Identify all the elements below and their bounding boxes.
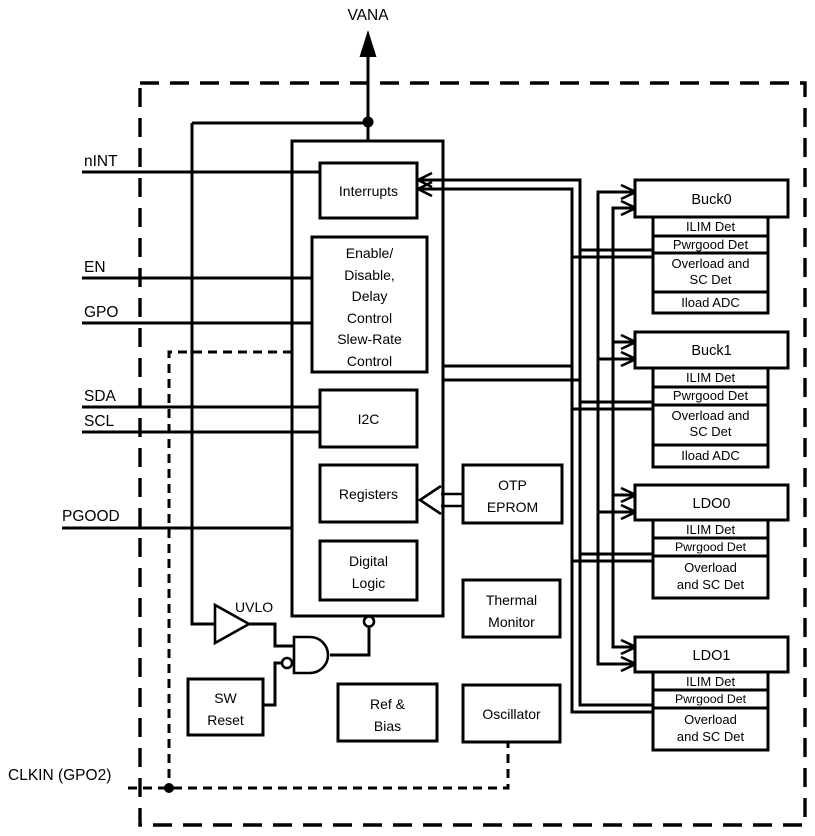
ref-bias-line-2: Bias bbox=[374, 718, 401, 734]
pgood-label: PGOOD bbox=[62, 508, 120, 525]
interrupts-label: Interrupts bbox=[339, 183, 398, 199]
pin-en: EN bbox=[82, 259, 312, 278]
gpo-label: GPO bbox=[84, 304, 118, 321]
pin-gpo: GPO bbox=[82, 304, 312, 323]
buck1-overload-line-2: SC Det bbox=[690, 424, 732, 439]
digital-logic-box bbox=[320, 541, 417, 600]
scl-label: SCL bbox=[84, 413, 115, 430]
vana-arrow-icon bbox=[360, 30, 377, 57]
oscillator-block: Oscillator bbox=[463, 685, 560, 742]
otp-open-arrow-icon bbox=[420, 486, 441, 514]
enable-line-4: Control bbox=[347, 310, 392, 326]
digital-logic-line-2: Logic bbox=[352, 575, 385, 591]
enable-bus-wire-1 bbox=[598, 192, 635, 664]
ldo1-pwrgood-label: Pwrgood Det bbox=[675, 692, 747, 706]
nand-output-wire bbox=[330, 627, 369, 656]
sda-label: SDA bbox=[84, 388, 117, 405]
enable-bus-wire-2 bbox=[613, 208, 635, 647]
buck1-overload-line-1: Overload and bbox=[671, 408, 749, 423]
buck0-overload-line-1: Overload and bbox=[671, 256, 749, 271]
uvlo-label: UVLO bbox=[235, 599, 273, 615]
digital-logic-line-1: Digital bbox=[349, 553, 388, 569]
interrupts-block: Interrupts bbox=[320, 163, 417, 218]
nand-gate bbox=[282, 617, 374, 674]
registers-label: Registers bbox=[339, 486, 398, 502]
buck0-overload-line-2: SC Det bbox=[690, 272, 732, 287]
pin-nint: nINT bbox=[82, 153, 320, 172]
ldo0-overload-line-2: and SC Det bbox=[677, 577, 745, 592]
clkin-label: CLKIN (GPO2) bbox=[8, 767, 111, 784]
digital-logic-block: Digital Logic bbox=[320, 541, 417, 600]
ldo0-ilim-label: ILIM Det bbox=[686, 522, 736, 537]
ldo1-title: LDO1 bbox=[693, 648, 731, 664]
oscillator-label: Oscillator bbox=[482, 706, 541, 722]
thermal-line-1: Thermal bbox=[486, 592, 537, 608]
otp-line-1: OTP bbox=[498, 477, 527, 493]
sw-reset-block: SW Reset bbox=[188, 663, 282, 735]
sw-reset-wire bbox=[263, 663, 282, 705]
clkin-junction-dot bbox=[164, 783, 174, 793]
buck0-pwrgood-label: Pwrgood Det bbox=[673, 237, 749, 252]
nand-output-bubble-icon bbox=[364, 617, 374, 627]
nint-label: nINT bbox=[84, 153, 118, 170]
en-label: EN bbox=[84, 259, 106, 276]
pin-clkin: CLKIN (GPO2) bbox=[8, 767, 111, 784]
pin-scl: SCL bbox=[82, 413, 320, 432]
enable-line-3: Delay bbox=[352, 288, 388, 304]
ldo1-overload-line-1: Overload bbox=[684, 712, 737, 727]
i2c-label: I2C bbox=[358, 411, 380, 427]
ref-bias-line-1: Ref & bbox=[370, 696, 406, 712]
sw-reset-line-2: Reset bbox=[207, 712, 244, 728]
enable-line-1: Enable/ bbox=[346, 245, 394, 261]
buck1-block: Buck1 ILIM Det Pwrgood Det Overload and … bbox=[635, 332, 788, 467]
buck1-ilim-label: ILIM Det bbox=[686, 370, 736, 385]
ldo0-pwrgood-label: Pwrgood Det bbox=[675, 540, 747, 554]
pin-sda: SDA bbox=[82, 388, 320, 407]
uvlo-input-wire bbox=[192, 123, 215, 624]
enable-line-2: Disable, bbox=[344, 267, 395, 283]
otp-eprom-block: OTP EPROM bbox=[420, 465, 562, 523]
pmic-block-diagram: VANA nINT EN GPO SDA SCL PGOOD CLKIN (GP… bbox=[0, 0, 815, 836]
ldo0-overload-line-1: Overload bbox=[684, 560, 737, 575]
thermal-monitor-block: Thermal Monitor bbox=[463, 580, 560, 637]
ldo1-ilim-label: ILIM Det bbox=[686, 674, 736, 689]
sw-reset-line-1: SW bbox=[214, 690, 237, 706]
uvlo-buffer: UVLO bbox=[215, 599, 294, 646]
enable-line-5: Slew-Rate bbox=[337, 331, 402, 347]
buck0-ilim-label: ILIM Det bbox=[686, 219, 736, 234]
buck0-iload-label: Iload ADC bbox=[681, 295, 740, 310]
nand-input-bubble-icon bbox=[282, 658, 292, 668]
vana-label: VANA bbox=[347, 7, 389, 24]
buck0-block: Buck0 ILIM Det Pwrgood Det Overload and … bbox=[635, 180, 788, 313]
otp-line-2: EPROM bbox=[487, 499, 538, 515]
ref-bias-block: Ref & Bias bbox=[338, 684, 437, 741]
nand-gate-icon bbox=[294, 637, 328, 673]
enable-line-6: Control bbox=[347, 353, 392, 369]
vana-junction-dot bbox=[363, 117, 374, 128]
ldo1-overload-line-2: and SC Det bbox=[677, 729, 745, 744]
buck1-title: Buck1 bbox=[691, 343, 731, 359]
registers-block: Registers bbox=[320, 465, 417, 522]
buck1-pwrgood-label: Pwrgood Det bbox=[673, 388, 749, 403]
pin-pgood: PGOOD bbox=[62, 508, 292, 528]
ldo0-title: LDO0 bbox=[693, 496, 731, 512]
diagram-canvas: VANA nINT EN GPO SDA SCL PGOOD CLKIN (GP… bbox=[0, 0, 815, 836]
vana-supply: VANA bbox=[192, 7, 389, 141]
buck1-iload-label: Iload ADC bbox=[681, 448, 740, 463]
buck0-title: Buck0 bbox=[691, 192, 731, 208]
ldo0-block: LDO0 ILIM Det Pwrgood Det Overload and S… bbox=[635, 485, 788, 598]
thermal-line-2: Monitor bbox=[488, 614, 535, 630]
i2c-block: I2C bbox=[320, 390, 417, 447]
enable-control-block: Enable/ Disable, Delay Control Slew-Rate… bbox=[312, 237, 427, 372]
clkin-to-oscillator-dashed-wire bbox=[128, 742, 508, 788]
uvlo-output-wire bbox=[249, 624, 294, 646]
ldo1-block: LDO1 ILIM Det Pwrgood Det Overload and S… bbox=[635, 637, 788, 750]
